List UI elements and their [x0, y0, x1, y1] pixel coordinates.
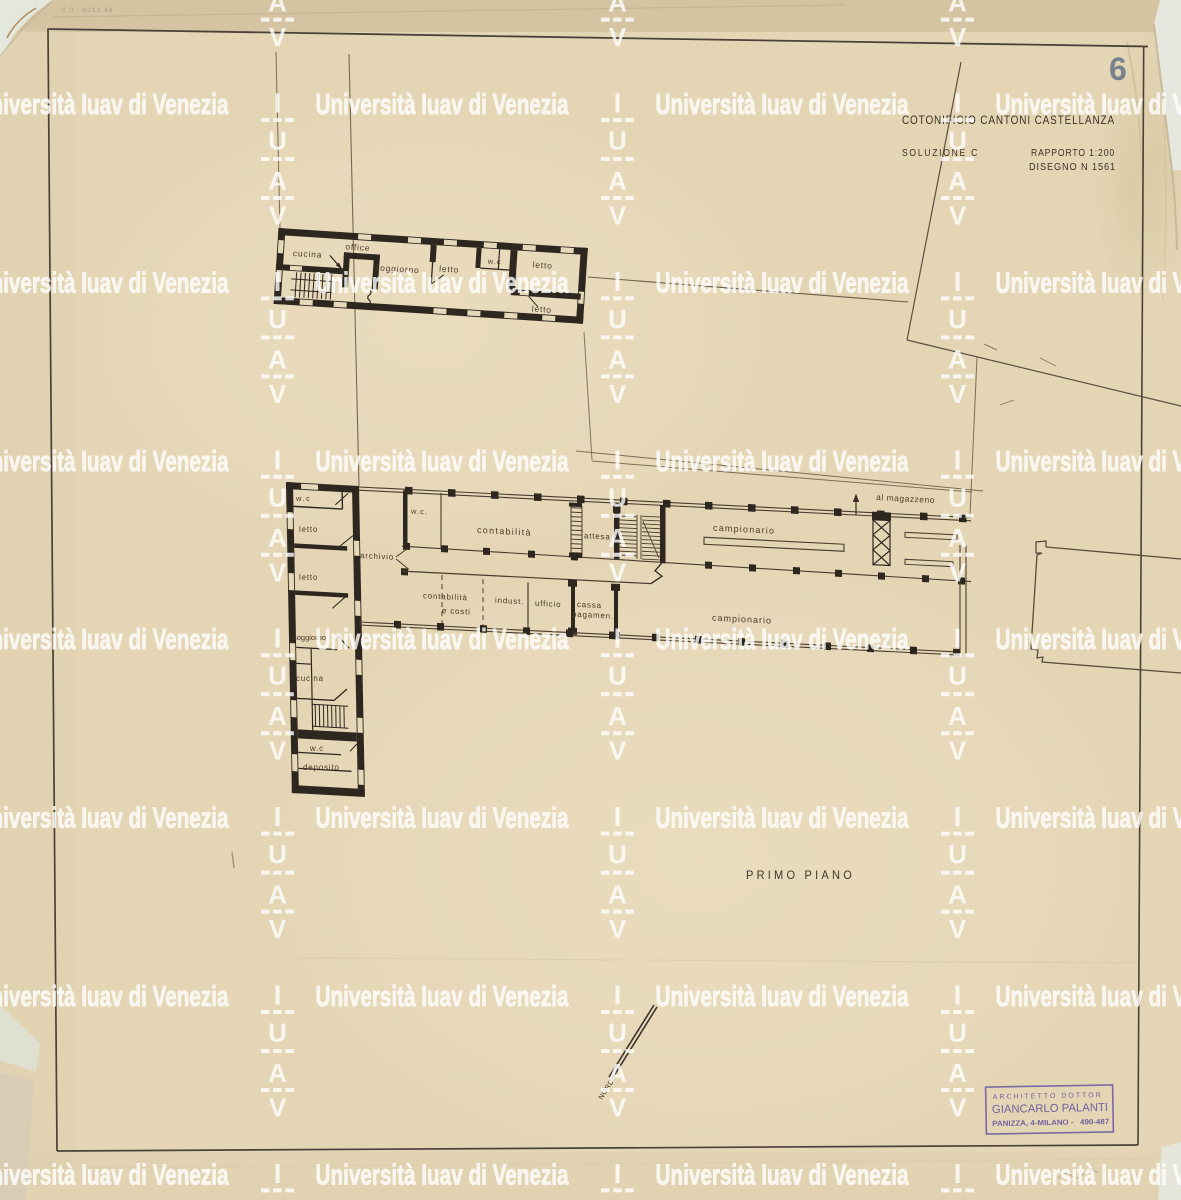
svg-text:Università Iuav di Venezia: Università Iuav di Venezia — [656, 803, 910, 835]
svg-text:A: A — [268, 0, 287, 18]
svg-text:U: U — [268, 482, 287, 512]
svg-text:Università Iuav di Venezia: Università Iuav di Venezia — [996, 624, 1181, 656]
svg-text:e costi: e costi — [442, 606, 471, 616]
svg-text:U: U — [948, 126, 967, 156]
svg-text:V: V — [949, 22, 967, 52]
svg-text:6: 6 — [1109, 51, 1127, 87]
svg-text:A: A — [268, 701, 287, 731]
svg-text:I: I — [954, 623, 962, 654]
svg-text:V: V — [269, 557, 287, 587]
svg-text:U: U — [948, 482, 967, 512]
svg-text:Università Iuav di Venezia: Università Iuav di Venezia — [656, 267, 910, 299]
svg-text:V: V — [609, 379, 627, 409]
svg-text:I: I — [614, 88, 622, 119]
svg-text:DISEGNO N 1561: DISEGNO N 1561 — [1029, 162, 1116, 173]
svg-text:I: I — [274, 88, 282, 119]
svg-text:V: V — [609, 1093, 627, 1123]
svg-text:U: U — [608, 661, 627, 691]
svg-text:I: I — [274, 801, 282, 832]
svg-text:U: U — [608, 839, 627, 869]
svg-text:I: I — [614, 623, 622, 654]
svg-text:U: U — [948, 1018, 967, 1048]
svg-text:A: A — [268, 166, 287, 196]
svg-text:A: A — [608, 523, 627, 553]
svg-text:A: A — [948, 523, 967, 553]
svg-text:A: A — [268, 1058, 287, 1088]
svg-text:Università Iuav di Venezia: Università Iuav di Venezia — [316, 89, 570, 121]
svg-text:V: V — [949, 379, 967, 409]
svg-text:I: I — [614, 801, 622, 832]
svg-text:V: V — [949, 1093, 967, 1123]
svg-text:I: I — [274, 266, 282, 297]
svg-text:I: I — [954, 266, 962, 297]
svg-text:I: I — [274, 444, 282, 475]
svg-text:I: I — [614, 444, 622, 475]
svg-text:office: office — [345, 241, 371, 253]
svg-text:V: V — [269, 201, 287, 231]
svg-text:Università Iuav di Venezia: Università Iuav di Venezia — [0, 446, 229, 478]
svg-text:A: A — [608, 880, 627, 910]
svg-text:Università Iuav di Venezia: Università Iuav di Venezia — [316, 624, 570, 656]
svg-text:Università Iuav di Venezia: Università Iuav di Venezia — [656, 624, 910, 656]
svg-text:A: A — [608, 0, 627, 18]
svg-text:V: V — [609, 736, 627, 766]
svg-text:U: U — [268, 839, 287, 869]
svg-text:I: I — [954, 88, 962, 119]
svg-text:Università Iuav di Venezia: Università Iuav di Venezia — [316, 1159, 570, 1191]
svg-text:U: U — [608, 126, 627, 156]
svg-text:U: U — [268, 126, 287, 156]
svg-text:V: V — [609, 914, 627, 944]
svg-text:deposito: deposito — [303, 763, 340, 772]
svg-text:A: A — [948, 0, 967, 18]
svg-text:V: V — [949, 914, 967, 944]
svg-text:Università Iuav di Venezia: Università Iuav di Venezia — [316, 267, 570, 299]
svg-text:A: A — [948, 701, 967, 731]
svg-text:Università Iuav di Venezia: Università Iuav di Venezia — [0, 624, 229, 656]
svg-text:A: A — [608, 1058, 627, 1088]
svg-text:U: U — [608, 304, 627, 334]
svg-text:attesa: attesa — [584, 531, 611, 541]
svg-text:A: A — [948, 1058, 967, 1088]
svg-text:Università Iuav di Venezia: Università Iuav di Venezia — [996, 89, 1181, 121]
svg-text:V: V — [269, 736, 287, 766]
svg-text:V: V — [949, 557, 967, 587]
svg-text:U: U — [268, 1018, 287, 1048]
svg-text:Università Iuav di Venezia: Università Iuav di Venezia — [0, 267, 229, 299]
svg-text:I: I — [954, 444, 962, 475]
svg-text:A: A — [948, 880, 967, 910]
svg-text:U: U — [608, 1018, 627, 1048]
svg-text:Università Iuav di Venezia: Università Iuav di Venezia — [656, 1159, 910, 1191]
svg-text:2,0 - 6213 49: 2,0 - 6213 49 — [62, 7, 113, 14]
svg-text:letto: letto — [299, 573, 318, 582]
svg-text:Università Iuav di Venezia: Università Iuav di Venezia — [996, 981, 1181, 1013]
svg-text:U: U — [948, 661, 967, 691]
svg-text:Università Iuav di Venezia: Università Iuav di Venezia — [996, 267, 1181, 299]
svg-text:U: U — [268, 661, 287, 691]
svg-text:Università Iuav di Venezia: Università Iuav di Venezia — [316, 803, 570, 835]
svg-text:w.c.: w.c. — [410, 507, 428, 517]
svg-text:I: I — [954, 801, 962, 832]
svg-text:I: I — [274, 980, 282, 1011]
svg-text:Università Iuav di Venezia: Università Iuav di Venezia — [0, 89, 229, 121]
svg-text:Università Iuav di Venezia: Università Iuav di Venezia — [0, 981, 229, 1013]
svg-text:ufficio: ufficio — [535, 599, 561, 609]
svg-text:Università Iuav di Venezia: Università Iuav di Venezia — [996, 446, 1181, 478]
svg-text:Università Iuav di Venezia: Università Iuav di Venezia — [316, 446, 570, 478]
svg-text:A: A — [608, 166, 627, 196]
svg-text:I: I — [614, 266, 622, 297]
svg-text:V: V — [269, 914, 287, 944]
svg-text:cucina: cucina — [293, 248, 323, 260]
svg-text:Università Iuav di Venezia: Università Iuav di Venezia — [656, 89, 910, 121]
svg-text:letto: letto — [532, 304, 553, 315]
svg-text:A: A — [948, 166, 967, 196]
svg-text:archivio: archivio — [360, 551, 394, 562]
svg-text:w.c: w.c — [295, 494, 311, 503]
svg-text:U: U — [608, 482, 627, 512]
svg-text:RAPPORTO 1:200: RAPPORTO 1:200 — [1031, 148, 1115, 159]
svg-text:A: A — [268, 523, 287, 553]
svg-text:Università Iuav di Venezia: Università Iuav di Venezia — [0, 1159, 229, 1191]
svg-text:U: U — [948, 839, 967, 869]
svg-text:A: A — [948, 344, 967, 374]
svg-text:Università Iuav di Venezia: Università Iuav di Venezia — [0, 803, 229, 835]
svg-text:V: V — [269, 1093, 287, 1123]
svg-text:I: I — [614, 980, 622, 1011]
svg-text:U: U — [948, 304, 967, 334]
svg-text:indust.: indust. — [495, 596, 524, 606]
svg-text:PRIMO PIANO: PRIMO PIANO — [746, 868, 855, 882]
svg-text:cassa: cassa — [577, 600, 602, 610]
svg-text:A: A — [608, 701, 627, 731]
svg-text:w.c: w.c — [309, 744, 324, 753]
svg-text:V: V — [269, 22, 287, 52]
svg-text:I: I — [954, 1158, 962, 1189]
svg-text:Università Iuav di Venezia: Università Iuav di Venezia — [316, 981, 570, 1013]
svg-text:Università Iuav di Venezia: Università Iuav di Venezia — [996, 1159, 1181, 1191]
svg-text:Università Iuav di Venezia: Università Iuav di Venezia — [656, 446, 910, 478]
svg-text:w.c: w.c — [487, 257, 502, 267]
svg-text:V: V — [949, 736, 967, 766]
svg-text:A: A — [268, 344, 287, 374]
svg-text:I: I — [614, 1158, 622, 1189]
svg-text:V: V — [609, 201, 627, 231]
svg-text:V: V — [949, 201, 967, 231]
svg-text:U: U — [268, 304, 287, 334]
svg-text:GIANCARLO PALANTI: GIANCARLO PALANTI — [992, 1102, 1108, 1116]
svg-text:A: A — [608, 344, 627, 374]
svg-text:A: A — [268, 880, 287, 910]
svg-text:V: V — [609, 557, 627, 587]
svg-text:Università Iuav di Venezia: Università Iuav di Venezia — [656, 981, 910, 1013]
svg-text:I: I — [274, 1158, 282, 1189]
svg-text:Università Iuav di Venezia: Università Iuav di Venezia — [996, 803, 1181, 835]
svg-text:V: V — [609, 22, 627, 52]
svg-text:V: V — [269, 379, 287, 409]
svg-text:cucina: cucina — [296, 674, 324, 683]
svg-text:letto: letto — [299, 525, 318, 534]
svg-text:I: I — [954, 980, 962, 1011]
svg-text:I: I — [274, 623, 282, 654]
